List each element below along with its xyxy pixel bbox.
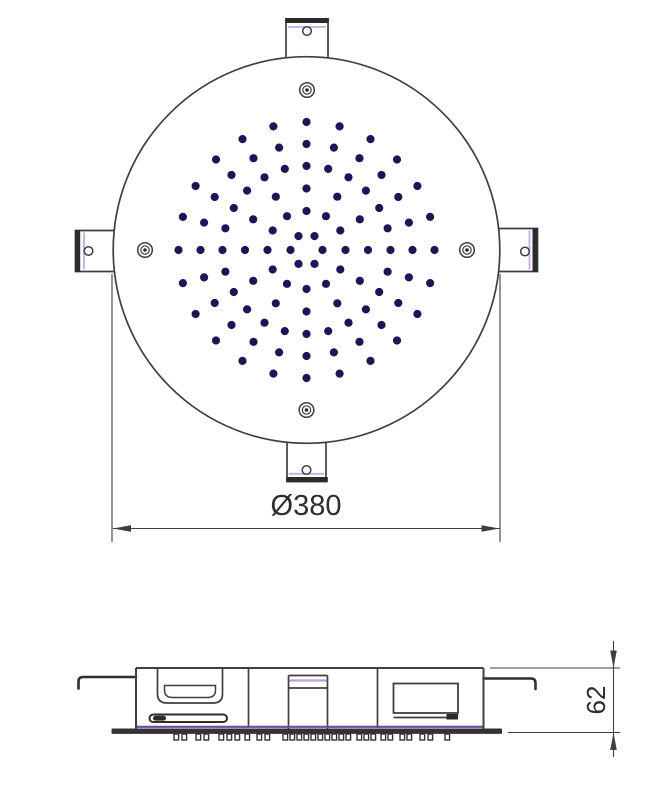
nozzle-dot	[269, 226, 277, 234]
nozzle-dot	[362, 187, 370, 195]
nozzle-dot	[366, 357, 374, 365]
nozzle-dot	[333, 299, 341, 307]
nozzle-dot	[330, 144, 338, 152]
nozzle-dot	[375, 288, 383, 296]
nozzle-dot	[426, 279, 434, 287]
nozzle-teeth	[174, 734, 450, 740]
spray-tooth	[245, 734, 250, 740]
spray-tooth	[332, 734, 337, 740]
nozzle-dot	[302, 352, 310, 360]
height-dimension: 62	[490, 641, 620, 757]
nozzle-dot	[377, 321, 385, 329]
spray-tooth	[400, 734, 405, 740]
nozzle-dot	[394, 299, 402, 307]
nozzle-dot	[227, 171, 235, 179]
nozzle-dot	[243, 305, 251, 313]
nozzle-dot	[426, 213, 434, 221]
tab-clamp-bar	[286, 477, 328, 482]
spray-tooth	[283, 734, 288, 740]
nozzle-dot	[384, 224, 392, 232]
mounting-tab-right	[499, 228, 538, 272]
nozzle-dot	[302, 140, 310, 148]
nozzle-dot	[218, 246, 226, 254]
tab-outline	[287, 443, 326, 482]
left-channel	[150, 668, 228, 722]
spray-tooth	[388, 734, 393, 740]
nozzle-dot	[430, 246, 438, 254]
nozzle-dot	[294, 260, 302, 268]
nozzle-dot	[281, 327, 289, 335]
spray-tooth	[219, 734, 224, 740]
nozzle-dot	[302, 207, 310, 215]
nozzle-dot	[408, 246, 416, 254]
nozzle-dot	[393, 155, 401, 163]
nozzle-dot	[302, 162, 310, 170]
spray-tooth	[227, 734, 232, 740]
nozzle-dot	[324, 327, 332, 335]
nozzle-dot	[336, 226, 344, 234]
nozzle-dot	[362, 305, 370, 313]
nozzle-dot	[364, 246, 372, 254]
nozzle-dot	[302, 118, 310, 126]
spray-tooth	[311, 734, 316, 740]
nozzle-dot	[275, 144, 283, 152]
mounting-tab-top	[285, 18, 329, 58]
spray-tooth	[304, 734, 309, 740]
nozzle-dot	[212, 155, 220, 163]
nozzle-dot	[324, 165, 332, 173]
spray-tooth	[204, 734, 209, 740]
nozzle-dot	[413, 310, 421, 318]
spray-tooth	[407, 734, 412, 740]
slide-bar-clip	[153, 716, 166, 721]
tab-outline	[286, 19, 328, 58]
arrowhead-right	[482, 525, 500, 532]
nozzle-dot	[238, 135, 246, 143]
nozzle-dot	[405, 219, 413, 227]
screw-center	[143, 248, 147, 252]
spray-tooth	[371, 734, 376, 740]
nozzle-dot	[355, 338, 363, 346]
left-hook-bracket	[79, 677, 137, 689]
spray-tooth	[196, 734, 201, 740]
nozzle-dot	[272, 193, 280, 201]
nozzle-dot	[322, 280, 330, 288]
nozzle-dot	[200, 219, 208, 227]
spray-tooth	[346, 734, 351, 740]
nozzle-dot	[294, 232, 302, 240]
spray-tooth	[420, 734, 425, 740]
nozzle-dot	[336, 370, 344, 378]
nozzle-dot	[286, 246, 294, 254]
chamber-foot	[447, 714, 459, 720]
spray-tooth	[182, 734, 187, 740]
right-chamber	[394, 684, 459, 720]
nozzle-dot	[260, 173, 268, 181]
nozzle-dot	[302, 307, 310, 315]
nozzle-dot	[249, 277, 257, 285]
channel-slot	[165, 686, 216, 698]
nozzle-dot	[179, 279, 187, 287]
arrowhead-bottom	[610, 733, 617, 751]
nozzle-dot	[174, 246, 182, 254]
nozzle-dot	[269, 265, 277, 273]
nozzle-dot	[272, 299, 280, 307]
nozzle-dot	[302, 285, 310, 293]
nozzle-dot	[221, 224, 229, 232]
top-view	[75, 18, 538, 482]
nozzle-dot	[281, 165, 289, 173]
nozzle-dot	[230, 204, 238, 212]
nozzle-dot	[269, 122, 277, 130]
nozzle-dot	[336, 265, 344, 273]
nozzle-dot	[249, 338, 257, 346]
tab-hole	[521, 247, 530, 256]
spray-tooth	[364, 734, 369, 740]
nozzle-dot	[227, 321, 235, 329]
spray-tooth	[428, 734, 433, 740]
nozzle-dot	[179, 213, 187, 221]
nozzle-dot	[366, 135, 374, 143]
nozzle-dot	[196, 246, 204, 254]
screw-center	[465, 248, 469, 252]
nozzle-dot	[275, 348, 283, 356]
nozzle-dot	[269, 370, 277, 378]
tab-outline	[76, 231, 115, 272]
nozzle-dot	[355, 154, 363, 162]
nozzle-dot	[318, 246, 326, 254]
tab-clamp-bar	[285, 18, 329, 23]
shower-plate-circle	[113, 57, 500, 444]
right-hook-bracket	[484, 679, 536, 690]
screw-hole-bottom	[299, 403, 314, 418]
spray-tooth	[357, 734, 362, 740]
nozzle-dot	[310, 260, 318, 268]
spray-tooth	[257, 734, 262, 740]
technical-drawing-page: Ø380	[0, 0, 661, 800]
nozzle-dot	[377, 171, 385, 179]
nozzle-dot	[330, 348, 338, 356]
nozzle-dot	[302, 374, 310, 382]
spray-tooth	[318, 734, 323, 740]
nozzle-dot	[230, 288, 238, 296]
nozzle-dot	[200, 273, 208, 281]
nozzle-dot	[310, 232, 318, 240]
nozzle-dot	[336, 122, 344, 130]
flange-plate	[112, 729, 503, 734]
nozzle-dot	[322, 212, 330, 220]
nozzle-dot	[413, 182, 421, 190]
arrowhead-left	[113, 525, 131, 532]
nozzle-dot	[344, 319, 352, 327]
nozzle-dot	[393, 336, 401, 344]
tab-hole	[84, 247, 93, 256]
spray-tooth	[297, 734, 302, 740]
screw-hole-top	[300, 83, 315, 98]
nozzle-dot	[386, 246, 394, 254]
height-label: 62	[581, 686, 611, 715]
spray-tooth	[325, 734, 330, 740]
nozzle-dot	[333, 193, 341, 201]
nozzle-dot	[211, 193, 219, 201]
screw-center	[305, 88, 309, 92]
diameter-label: Ø380	[271, 490, 342, 522]
nozzle-dot	[192, 310, 200, 318]
spray-tooth	[290, 734, 295, 740]
nozzle-dot	[243, 187, 251, 195]
screw-center	[305, 408, 309, 412]
tab-hole	[302, 466, 311, 475]
side-view	[79, 668, 536, 740]
mounting-tab-left	[75, 230, 114, 272]
spray-tooth	[445, 734, 450, 740]
arrowhead-top	[610, 651, 617, 669]
nozzle-dot	[192, 182, 200, 190]
bottom-flange	[112, 727, 503, 740]
nozzle-dot	[405, 273, 413, 281]
screw-hole-left	[138, 243, 153, 258]
nozzle-field	[174, 118, 438, 382]
nozzle-dot	[221, 268, 229, 276]
water-inlet	[289, 676, 328, 729]
tab-outline	[499, 229, 538, 272]
nozzle-dot	[302, 184, 310, 192]
nozzle-dot	[260, 319, 268, 327]
tab-clamp-bar	[75, 230, 80, 272]
nozzle-dot	[241, 246, 249, 254]
tab-clamp-bar	[533, 228, 538, 272]
spray-tooth	[381, 734, 386, 740]
nozzle-dot	[283, 280, 291, 288]
nozzle-dot	[341, 246, 349, 254]
tab-hole	[303, 27, 312, 36]
nozzle-dot	[249, 154, 257, 162]
nozzle-dot	[249, 215, 257, 223]
nozzle-dot	[212, 336, 220, 344]
screw-hole-right	[460, 243, 475, 258]
nozzle-dot	[344, 173, 352, 181]
spray-tooth	[339, 734, 344, 740]
chamber-outline	[394, 684, 459, 714]
nozzle-dot	[375, 204, 383, 212]
nozzle-dot	[302, 330, 310, 338]
nozzle-dot	[356, 215, 364, 223]
shower-head-drawing: Ø380	[0, 0, 661, 800]
spray-tooth	[235, 734, 240, 740]
nozzle-dot	[238, 357, 246, 365]
nozzle-dot	[211, 299, 219, 307]
nozzle-dot	[263, 246, 271, 254]
spray-tooth	[265, 734, 270, 740]
mounting-tab-bottom	[286, 443, 328, 483]
nozzle-dot	[384, 268, 392, 276]
nozzle-dot	[283, 212, 291, 220]
nozzle-dot	[356, 277, 364, 285]
spray-tooth	[174, 734, 179, 740]
nozzle-dot	[394, 193, 402, 201]
